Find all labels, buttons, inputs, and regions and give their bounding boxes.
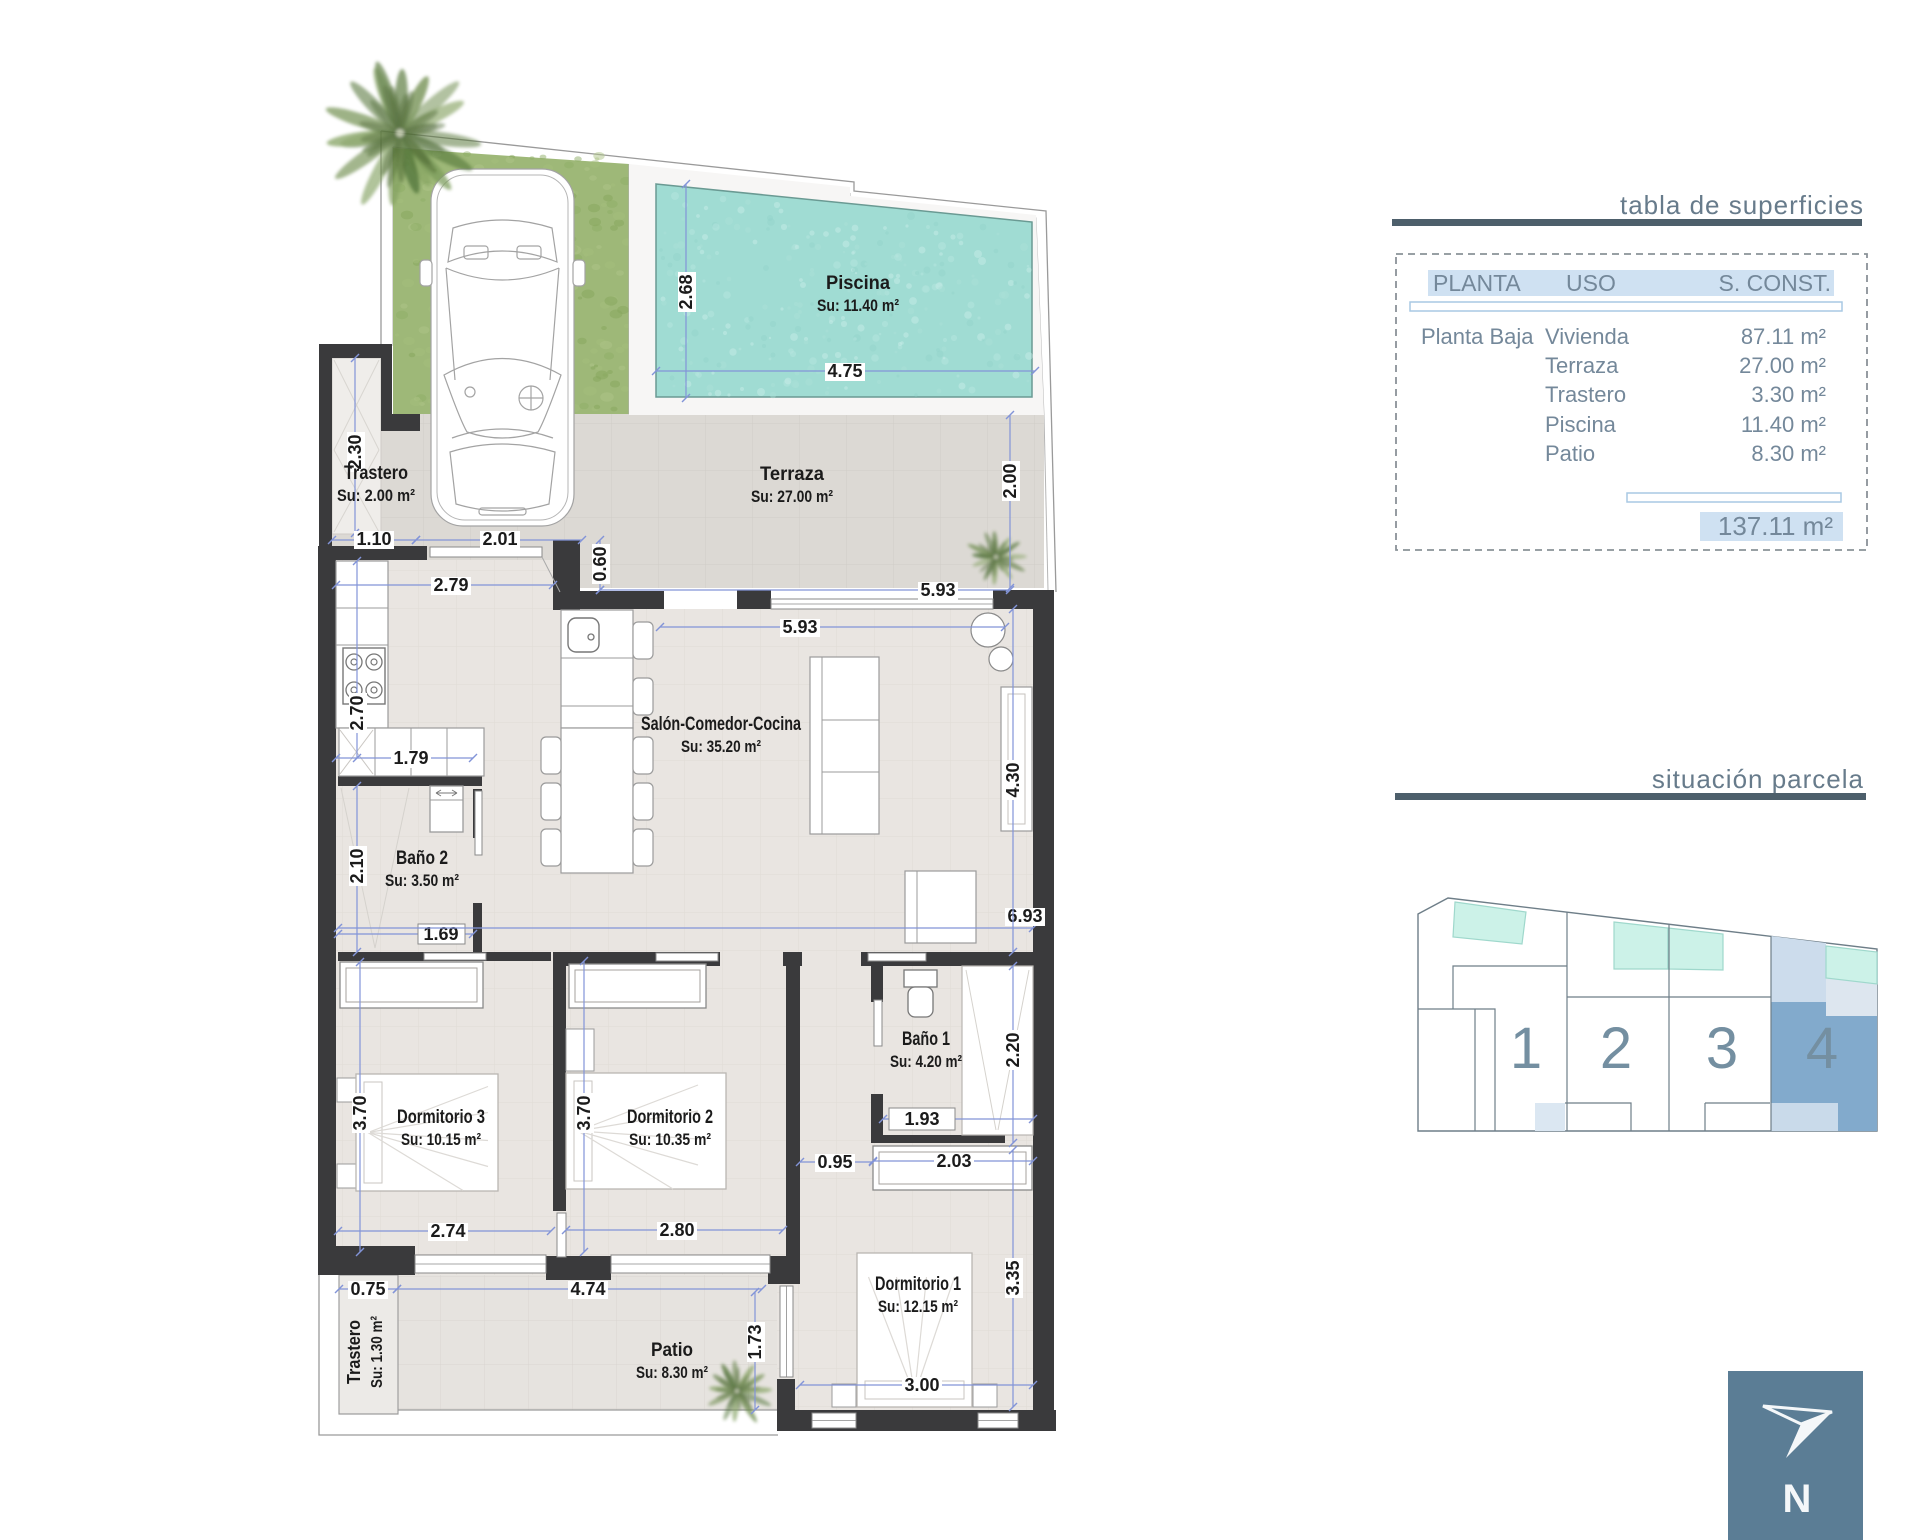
svg-text:Su: 2.00 m²: Su: 2.00 m²	[337, 486, 415, 505]
svg-text:Trastero: Trastero	[344, 1320, 364, 1384]
svg-text:Su: 3.50 m²: Su: 3.50 m²	[385, 871, 459, 890]
svg-text:Su: 10.15 m²: Su: 10.15 m²	[401, 1130, 481, 1149]
svg-text:1.79: 1.79	[393, 748, 428, 768]
svg-text:Terraza: Terraza	[760, 464, 824, 485]
svg-text:Trastero: Trastero	[1545, 382, 1626, 407]
svg-text:27.00 m²: 27.00 m²	[1739, 353, 1826, 378]
svg-text:2.20: 2.20	[1003, 1032, 1023, 1067]
svg-text:Patio: Patio	[1545, 441, 1595, 466]
svg-text:Patio: Patio	[651, 1340, 693, 1361]
svg-text:N: N	[1783, 1477, 1812, 1521]
svg-text:4.75: 4.75	[827, 361, 862, 381]
svg-text:3.70: 3.70	[350, 1095, 370, 1130]
svg-text:2.01: 2.01	[482, 529, 517, 549]
svg-text:5.93: 5.93	[782, 617, 817, 637]
svg-text:2.03: 2.03	[936, 1151, 971, 1171]
svg-text:0.95: 0.95	[817, 1152, 852, 1172]
svg-text:4: 4	[1806, 1016, 1838, 1081]
svg-text:3: 3	[1706, 1016, 1738, 1081]
svg-text:1.73: 1.73	[745, 1324, 765, 1359]
svg-text:Salón-Comedor-Cocina: Salón-Comedor-Cocina	[641, 714, 801, 735]
svg-text:Dormitorio 3: Dormitorio 3	[397, 1107, 485, 1128]
svg-text:2.68: 2.68	[676, 274, 696, 309]
svg-text:0.75: 0.75	[350, 1279, 385, 1299]
svg-text:1: 1	[1510, 1016, 1542, 1081]
svg-text:87.11 m²: 87.11 m²	[1741, 324, 1826, 349]
svg-text:Su: 27.00 m²: Su: 27.00 m²	[751, 487, 833, 506]
svg-text:Su: 8.30 m²: Su: 8.30 m²	[636, 1363, 708, 1382]
svg-text:3.30 m²: 3.30 m²	[1751, 382, 1826, 407]
svg-text:3.70: 3.70	[574, 1095, 594, 1130]
svg-text:PLANTA: PLANTA	[1433, 270, 1521, 296]
svg-text:Vivienda: Vivienda	[1545, 324, 1630, 349]
svg-text:2: 2	[1600, 1016, 1632, 1081]
svg-text:Planta Baja: Planta Baja	[1421, 324, 1534, 349]
svg-text:5.93: 5.93	[920, 580, 955, 600]
svg-text:S. CONST.: S. CONST.	[1719, 270, 1831, 296]
svg-text:1.69: 1.69	[423, 924, 458, 944]
svg-text:137.11 m²: 137.11 m²	[1718, 511, 1833, 541]
svg-text:3.00: 3.00	[904, 1375, 939, 1395]
svg-text:Su: 11.40 m²: Su: 11.40 m²	[817, 296, 899, 315]
svg-text:2.79: 2.79	[433, 575, 468, 595]
svg-text:0.60: 0.60	[590, 546, 610, 581]
svg-text:3.35: 3.35	[1003, 1260, 1023, 1295]
svg-text:4.74: 4.74	[570, 1279, 605, 1299]
svg-text:Trastero: Trastero	[344, 463, 408, 484]
svg-text:Su: 35.20 m²: Su: 35.20 m²	[681, 737, 761, 756]
svg-text:Baño 2: Baño 2	[396, 848, 448, 869]
svg-text:Su: 10.35 m²: Su: 10.35 m²	[629, 1130, 711, 1149]
svg-text:USO: USO	[1566, 270, 1616, 296]
svg-text:4.30: 4.30	[1003, 762, 1023, 797]
svg-text:Su: 4.20 m²: Su: 4.20 m²	[890, 1052, 962, 1071]
svg-text:Dormitorio 2: Dormitorio 2	[627, 1107, 713, 1128]
svg-text:Dormitorio 1: Dormitorio 1	[875, 1274, 961, 1295]
svg-text:2.00: 2.00	[1000, 463, 1020, 498]
svg-text:Su: 12.15 m²: Su: 12.15 m²	[878, 1297, 958, 1316]
svg-text:tabla de superficies: tabla de superficies	[1620, 190, 1864, 220]
svg-text:8.30 m²: 8.30 m²	[1751, 441, 1826, 466]
svg-text:1.93: 1.93	[904, 1109, 939, 1129]
svg-text:Baño 1: Baño 1	[902, 1029, 950, 1050]
svg-text:Piscina: Piscina	[826, 273, 890, 294]
svg-text:2.74: 2.74	[430, 1221, 465, 1241]
svg-text:2.10: 2.10	[347, 848, 367, 883]
svg-text:situación parcela: situación parcela	[1652, 764, 1864, 794]
svg-text:Piscina: Piscina	[1545, 412, 1617, 437]
svg-text:2.80: 2.80	[659, 1220, 694, 1240]
svg-text:Su: 1.30 m²: Su: 1.30 m²	[369, 1316, 386, 1388]
svg-text:2.70: 2.70	[347, 695, 367, 730]
svg-text:11.40 m²: 11.40 m²	[1741, 412, 1826, 437]
svg-text:1.10: 1.10	[356, 529, 391, 549]
svg-text:Terraza: Terraza	[1545, 353, 1619, 378]
